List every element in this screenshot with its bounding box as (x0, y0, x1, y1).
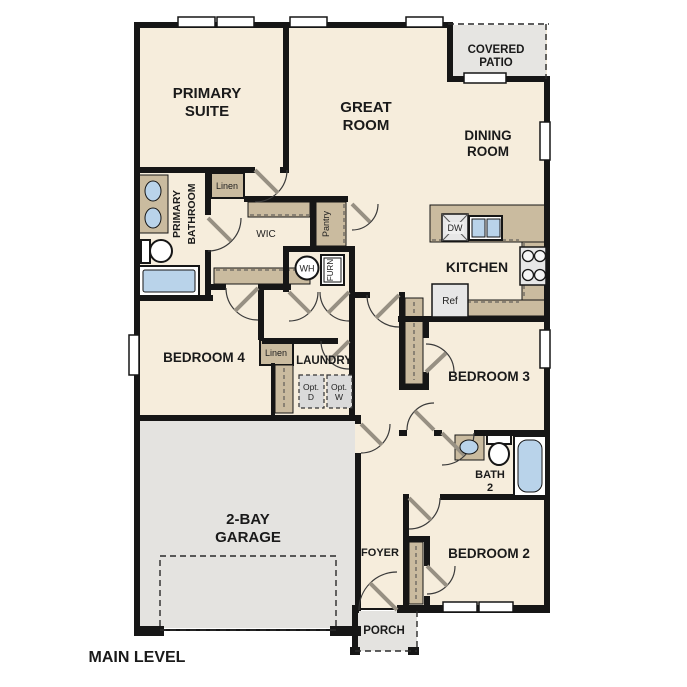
bedroom2-closet-strip (409, 542, 423, 604)
wall-segment (280, 167, 289, 173)
sink-icon (145, 208, 161, 228)
window (290, 17, 327, 27)
label-opt-dryer: D (308, 392, 314, 402)
wall-segment (134, 415, 361, 421)
label-primary-bathroom: PRIMARY (171, 190, 183, 238)
label-opt-washer: W (335, 392, 343, 402)
wall-segment (423, 372, 429, 384)
wall-segment (424, 596, 430, 606)
label-porch: PORCH (363, 625, 405, 637)
wall-segment (205, 167, 211, 215)
wall-segment (398, 316, 546, 322)
label-dining-room: ROOM (467, 144, 509, 159)
label-primary-bathroom: BATHROOM (186, 183, 198, 244)
wall-segment (403, 494, 409, 606)
label-garage: 2-BAY (226, 511, 270, 528)
label-kitchen: KITCHEN (446, 259, 508, 275)
burner-icon (523, 270, 534, 281)
wall-segment (283, 246, 289, 292)
label-great-room: ROOM (343, 117, 390, 134)
tub-basin-icon (518, 440, 542, 492)
label-linen: Linen (216, 181, 238, 191)
wall-segment (258, 284, 264, 340)
floor-plan-drawing: PRIMARY SUITE GREAT ROOM COVERED PATIO D… (0, 0, 687, 687)
window (464, 73, 506, 83)
sink-basin (472, 219, 485, 237)
label-laundry: LAUNDRY (296, 355, 352, 367)
wall-segment (423, 318, 429, 338)
label-pantry: Pantry (321, 210, 331, 237)
wall-segment (434, 430, 442, 436)
wall-segment (447, 22, 453, 82)
window (217, 17, 254, 27)
wall-segment (310, 196, 316, 246)
label-bath-2: 2 (487, 482, 493, 494)
wall-segment (207, 284, 226, 290)
sink-basin (487, 219, 500, 237)
wall-segment (271, 363, 275, 415)
front-door-threshold (358, 608, 398, 610)
wall-segment (355, 415, 361, 424)
label-opt-dryer: Opt. (303, 382, 319, 392)
wall-segment (134, 626, 164, 636)
wall-segment (134, 167, 255, 173)
label-refrigerator: Ref (442, 296, 458, 307)
label-bedroom-4: BEDROOM 4 (163, 350, 245, 365)
label-main-level: MAIN LEVEL (89, 649, 186, 666)
window (129, 335, 139, 375)
label-garage: GARAGE (215, 529, 281, 546)
toilet-bowl-icon (150, 240, 172, 262)
wall-segment (205, 250, 211, 301)
window (178, 17, 215, 27)
label-linen: Linen (265, 348, 287, 358)
label-dining-room: DINING (464, 128, 511, 143)
label-opt-washer: Opt. (331, 382, 347, 392)
label-great-room: GREAT (340, 99, 391, 116)
burner-icon (535, 251, 546, 262)
floor-plan-page: PRIMARY SUITE GREAT ROOM COVERED PATIO D… (0, 0, 687, 687)
wall-segment (399, 384, 429, 390)
label-wic: WIC (256, 229, 275, 240)
label-primary-suite: SUITE (185, 103, 229, 120)
label-foyer: FOYER (361, 547, 399, 559)
window (406, 17, 443, 27)
toilet-tank-icon (141, 240, 150, 263)
label-furnace: FURN (326, 259, 335, 281)
label-covered-patio: PATIO (479, 57, 512, 69)
window (479, 602, 513, 612)
wall-segment (283, 246, 355, 252)
burner-icon (535, 270, 546, 281)
burner-icon (523, 251, 534, 262)
tub-basin-icon (143, 270, 195, 292)
wall-segment (355, 453, 361, 611)
wall-segment (399, 430, 407, 436)
garage-door-opening (162, 629, 332, 631)
sink-icon (460, 440, 478, 454)
label-dishwasher: DW (448, 223, 463, 233)
window (443, 602, 477, 612)
sink-icon (145, 181, 161, 201)
wall-segment (352, 605, 358, 652)
label-primary-suite: PRIMARY (173, 85, 242, 102)
label-bedroom-2: BEDROOM 2 (448, 546, 530, 561)
label-bedroom-3: BEDROOM 3 (448, 369, 530, 384)
wall-segment (134, 22, 140, 636)
window (540, 122, 550, 160)
label-bath-2: BATH (475, 469, 505, 481)
wall-segment (262, 338, 338, 344)
window (540, 330, 550, 368)
wall-segment (424, 536, 430, 566)
label-covered-patio: COVERED (468, 44, 525, 56)
toilet-bowl-icon (489, 443, 509, 465)
wall-segment (399, 292, 405, 384)
wall-segment (283, 22, 289, 173)
label-water-heater: WH (300, 264, 315, 274)
